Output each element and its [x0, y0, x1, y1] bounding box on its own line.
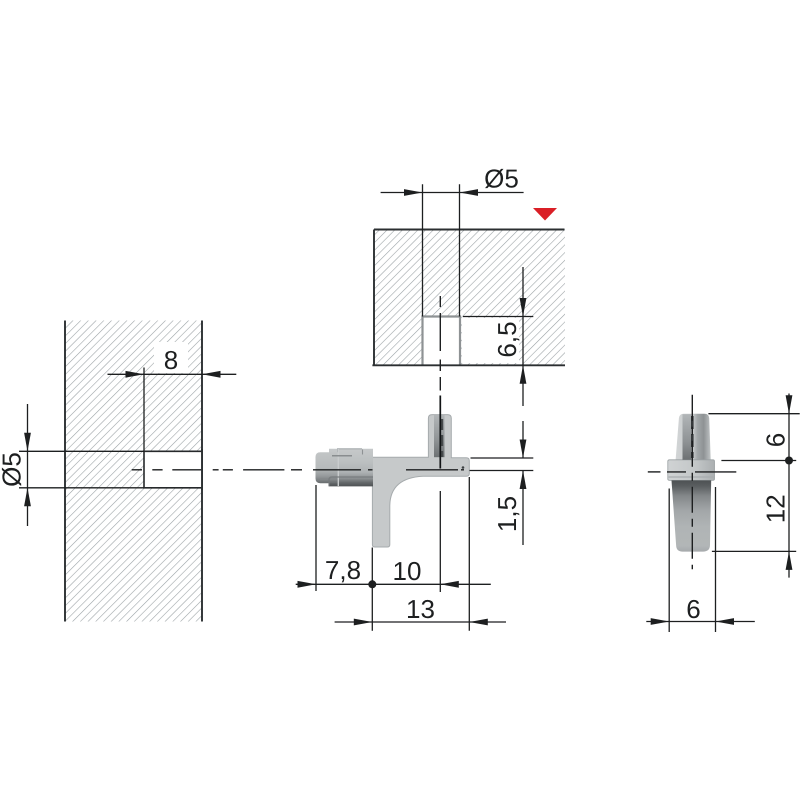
svg-text:8: 8 — [164, 345, 178, 375]
svg-text:6: 6 — [761, 433, 791, 447]
svg-text:1,5: 1,5 — [492, 496, 522, 532]
svg-text:12: 12 — [761, 494, 791, 523]
svg-text:Ø5: Ø5 — [0, 452, 27, 487]
svg-text:6,5: 6,5 — [492, 321, 522, 357]
svg-text:7,8: 7,8 — [325, 555, 361, 585]
svg-text:13: 13 — [406, 594, 435, 624]
svg-text:6: 6 — [686, 594, 700, 624]
svg-text:10: 10 — [393, 556, 422, 586]
svg-text:Ø5: Ø5 — [484, 164, 519, 194]
